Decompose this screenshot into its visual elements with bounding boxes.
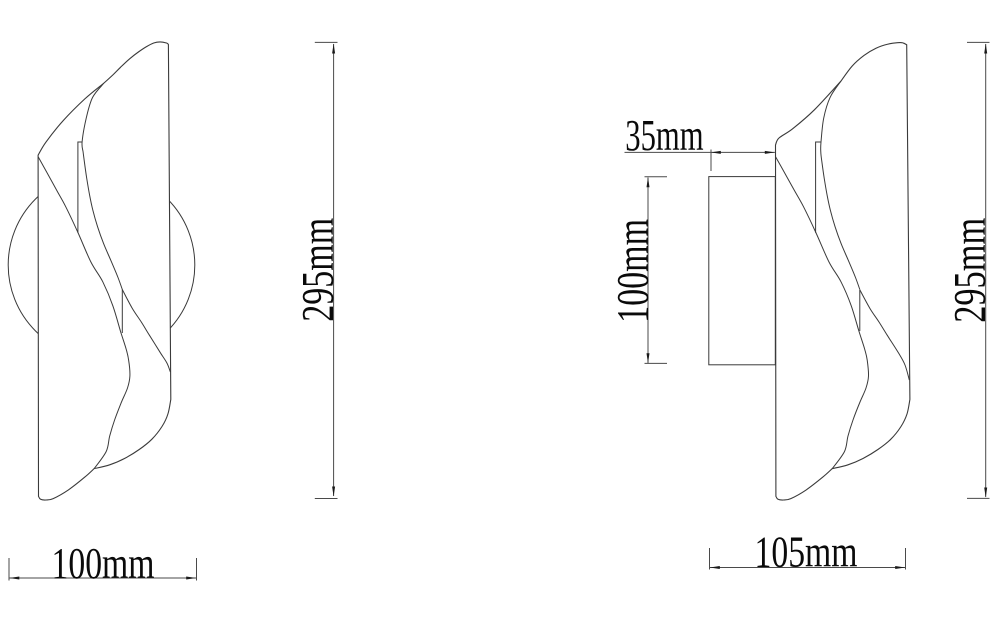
svg-text:100mm: 100mm xyxy=(52,539,155,588)
svg-text:35mm: 35mm xyxy=(625,111,703,160)
svg-text:100mm: 100mm xyxy=(607,219,658,323)
svg-text:105mm: 105mm xyxy=(755,528,858,577)
svg-text:295mm: 295mm xyxy=(292,218,343,322)
svg-text:295mm: 295mm xyxy=(944,218,995,323)
